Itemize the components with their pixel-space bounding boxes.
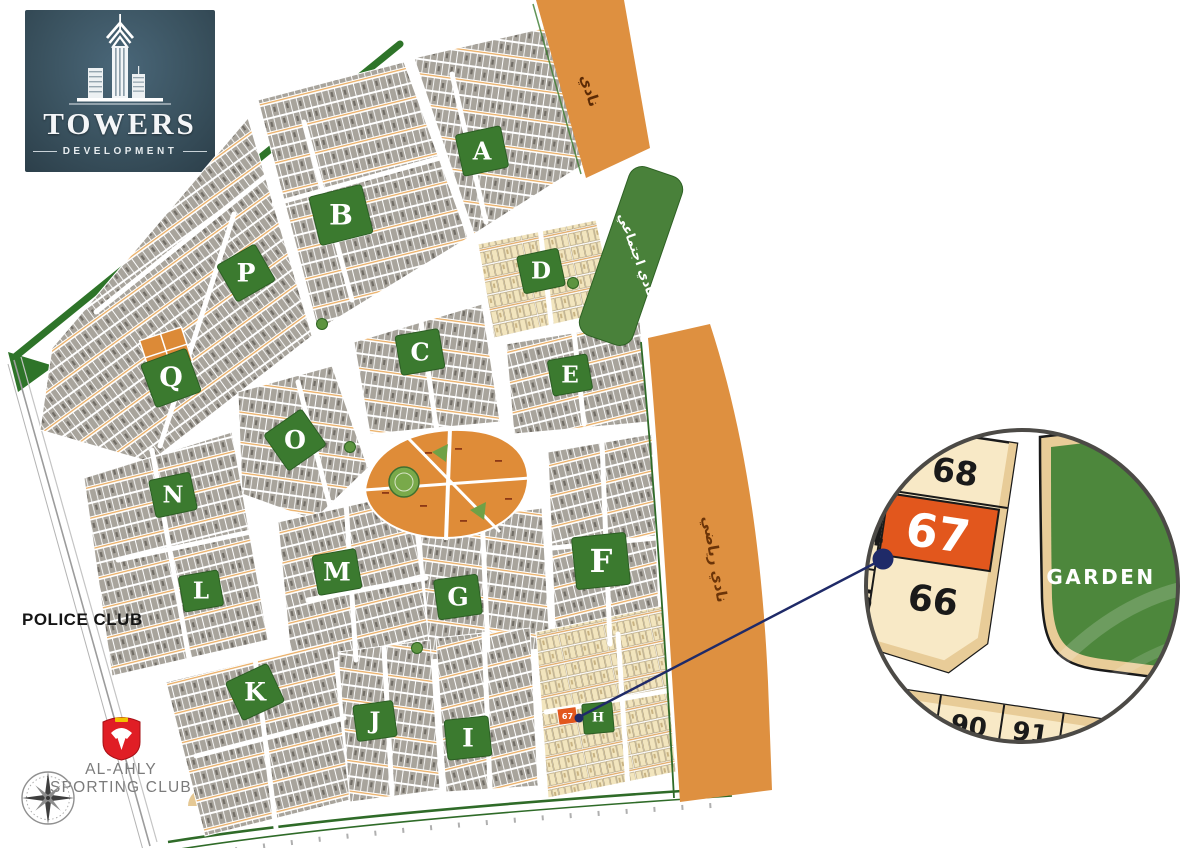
svg-text:E: E xyxy=(561,362,579,389)
district-n-marker: N xyxy=(149,472,198,518)
svg-text:G: G xyxy=(447,583,468,612)
svg-text:O: O xyxy=(284,426,306,455)
central-park-circle xyxy=(389,467,419,497)
al-ahly-label-1: AL-AHLY xyxy=(85,761,157,778)
district-e-marker: E xyxy=(547,354,593,396)
district-f-marker: F xyxy=(571,532,630,589)
svg-text:A: A xyxy=(472,137,492,166)
police-club-label: POLICE CLUB xyxy=(22,610,143,629)
svg-text:C: C xyxy=(410,338,429,367)
svg-text:M: M xyxy=(323,558,351,587)
district-i-marker: I xyxy=(444,716,492,760)
svg-text:D: D xyxy=(531,258,551,285)
svg-text:H: H xyxy=(592,711,604,726)
callout-garden-label: GARDEN xyxy=(1046,565,1155,589)
svg-text:K: K xyxy=(244,678,267,707)
al-ahly-logo xyxy=(103,718,140,761)
masterplan-map: نادي نادي اجتماعي نادي رياضي xyxy=(0,0,1200,848)
masterplan-canvas: TOWERS DEVELOPMENT xyxy=(0,0,1200,848)
callout-pin-dot xyxy=(873,549,894,570)
svg-text:J: J xyxy=(368,708,381,735)
svg-text:F: F xyxy=(590,542,613,580)
district-a-marker: A xyxy=(455,126,509,177)
svg-text:L: L xyxy=(193,578,209,605)
district-c-marker: C xyxy=(395,328,445,375)
district-m-marker: M xyxy=(312,548,362,595)
callout-plot-66-label: 66 xyxy=(905,577,961,625)
plot-callout: 68 67 64 65 66 90 91 GARDEN xyxy=(816,420,1200,765)
svg-text:P: P xyxy=(237,259,256,288)
district-l-marker: L xyxy=(178,570,224,612)
district-g-marker: G xyxy=(433,574,482,620)
svg-text:N: N xyxy=(162,482,183,509)
district-j-marker: J xyxy=(353,700,398,741)
callout-plot-67-label: 67 xyxy=(902,502,973,565)
callout-plot-91-label: 91 xyxy=(1010,716,1050,751)
svg-text:Q: Q xyxy=(159,363,183,394)
map-plot67-label: 67 xyxy=(562,712,573,721)
district-nl-area xyxy=(84,432,268,676)
compass-rose-icon xyxy=(22,772,74,824)
svg-text:B: B xyxy=(329,199,353,232)
district-d-marker: D xyxy=(517,248,566,294)
svg-text:I: I xyxy=(462,724,474,753)
